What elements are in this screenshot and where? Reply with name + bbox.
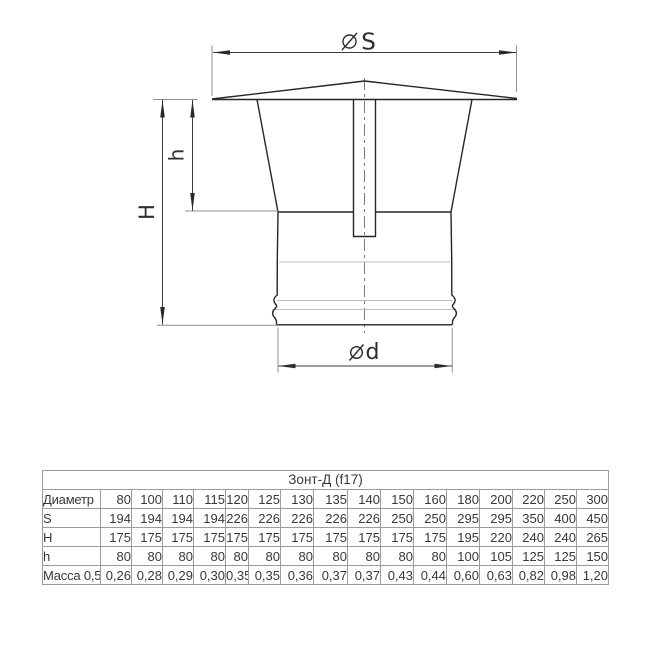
label-phi-d: d — [350, 340, 380, 365]
bottom-diameter-label: d — [366, 340, 380, 365]
value-cell: 80 — [194, 547, 226, 566]
cone-height-label: h — [165, 149, 189, 162]
cone-right — [451, 100, 472, 213]
label-phi-s: S — [342, 30, 376, 56]
value-cell: 300 — [577, 490, 609, 509]
value-cell: 295 — [480, 509, 513, 528]
value-cell: 105 — [480, 547, 513, 566]
value-cell: 100 — [132, 490, 163, 509]
value-cell: 130 — [281, 490, 314, 509]
value-cell: 226 — [226, 509, 249, 528]
value-cell: 220 — [480, 528, 513, 547]
value-cell: 80 — [348, 547, 381, 566]
value-cell: 175 — [226, 528, 249, 547]
row-label-cell: S — [43, 509, 101, 528]
table-row: h8080808080808080808080100105125125150 — [43, 547, 609, 566]
dimensions-table: Зонт-Д (f17) Диаметр80100110115120125130… — [42, 470, 609, 585]
value-cell: 0,37 — [314, 566, 348, 585]
value-cell: 115 — [194, 490, 226, 509]
row-label-cell: h — [43, 547, 101, 566]
value-cell: 194 — [163, 509, 194, 528]
diameter-icon — [342, 33, 357, 50]
value-cell: 0,63 — [480, 566, 513, 585]
value-cell: 110 — [163, 490, 194, 509]
value-cell: 175 — [414, 528, 447, 547]
value-cell: 194 — [194, 509, 226, 528]
value-cell: 265 — [577, 528, 609, 547]
value-cell: 226 — [249, 509, 281, 528]
cone-left — [257, 100, 278, 213]
value-cell: 0,30 — [194, 566, 226, 585]
value-cell: 295 — [447, 509, 480, 528]
value-cell: 80 — [414, 547, 447, 566]
value-cell: 350 — [513, 509, 545, 528]
value-cell: 250 — [545, 490, 577, 509]
table-title: Зонт-Д (f17) — [43, 471, 609, 490]
value-cell: 226 — [314, 509, 348, 528]
value-cell: 80 — [314, 547, 348, 566]
value-cell: 194 — [132, 509, 163, 528]
value-cell: 0,60 — [447, 566, 480, 585]
value-cell: 100 — [447, 547, 480, 566]
value-cell: 175 — [194, 528, 226, 547]
value-cell: 226 — [348, 509, 381, 528]
row-label-cell: Диаметр — [43, 490, 101, 509]
table-title-row: Зонт-Д (f17) — [43, 471, 609, 490]
value-cell: 195 — [447, 528, 480, 547]
cylinder-right-side — [451, 212, 456, 325]
value-cell: 0,43 — [381, 566, 414, 585]
row-label-cell: Масса 0,5 — [43, 566, 101, 585]
value-cell: 194 — [101, 509, 132, 528]
value-cell: 125 — [513, 547, 545, 566]
value-cell: 0,82 — [513, 566, 545, 585]
value-cell: 226 — [281, 509, 314, 528]
value-cell: 120 — [226, 490, 249, 509]
dim-arrow-down — [160, 307, 165, 325]
value-cell: 140 — [348, 490, 381, 509]
diameter-icon — [350, 345, 364, 361]
value-cell: 80 — [249, 547, 281, 566]
dim-arrow-right — [435, 364, 453, 369]
value-cell: 80 — [132, 547, 163, 566]
value-cell: 0,29 — [163, 566, 194, 585]
dim-arrow-up — [160, 100, 165, 118]
table-row: S194194194194226226226226226250250295295… — [43, 509, 609, 528]
value-cell: 180 — [447, 490, 480, 509]
value-cell: 150 — [381, 490, 414, 509]
value-cell: 80 — [381, 547, 414, 566]
value-cell: 80 — [226, 547, 249, 566]
value-cell: 0,35 — [249, 566, 281, 585]
value-cell: 160 — [414, 490, 447, 509]
dim-arrow-down — [190, 193, 195, 211]
center-stem — [354, 100, 376, 237]
dimension-bottom-diameter: d — [278, 328, 452, 373]
value-cell: 220 — [513, 490, 545, 509]
value-cell: 80 — [281, 547, 314, 566]
cylinder-left-side — [273, 212, 278, 325]
table-row: H175175175175175175175175175175175195220… — [43, 528, 609, 547]
product-drawing-page: S d H — [0, 0, 650, 650]
dim-arrow-right — [499, 50, 517, 55]
value-cell: 450 — [577, 509, 609, 528]
dim-arrow-left — [213, 50, 231, 55]
value-cell: 175 — [132, 528, 163, 547]
value-cell: 150 — [577, 547, 609, 566]
value-cell: 80 — [101, 490, 132, 509]
value-cell: 80 — [101, 547, 132, 566]
value-cell: 250 — [381, 509, 414, 528]
value-cell: 0,28 — [132, 566, 163, 585]
total-height-label: H — [135, 204, 159, 220]
dimension-total-height: H — [135, 100, 277, 326]
value-cell: 0,35 — [226, 566, 249, 585]
value-cell: 175 — [314, 528, 348, 547]
value-cell: 0,37 — [348, 566, 381, 585]
value-cell: 175 — [101, 528, 132, 547]
value-cell: 125 — [249, 490, 281, 509]
dimension-cone-height: h — [165, 100, 279, 211]
table-row: Диаметр801001101151201251301351401501601… — [43, 490, 609, 509]
value-cell: 175 — [249, 528, 281, 547]
value-cell: 0,44 — [414, 566, 447, 585]
value-cell: 240 — [545, 528, 577, 547]
value-cell: 0,26 — [101, 566, 132, 585]
value-cell: 135 — [314, 490, 348, 509]
chimney-cap-drawing: S d H — [0, 0, 650, 430]
value-cell: 175 — [163, 528, 194, 547]
top-diameter-label: S — [361, 30, 376, 56]
row-label-cell: H — [43, 528, 101, 547]
dim-arrow-left — [278, 364, 296, 369]
value-cell: 1,20 — [577, 566, 609, 585]
value-cell: 240 — [513, 528, 545, 547]
value-cell: 400 — [545, 509, 577, 528]
dim-arrow-up — [190, 100, 195, 118]
value-cell: 0,36 — [281, 566, 314, 585]
value-cell: 80 — [163, 547, 194, 566]
value-cell: 250 — [414, 509, 447, 528]
value-cell: 125 — [545, 547, 577, 566]
value-cell: 175 — [381, 528, 414, 547]
table-row: Масса 0,50,260,280,290,300,350,350,360,3… — [43, 566, 609, 585]
value-cell: 200 — [480, 490, 513, 509]
value-cell: 0,98 — [545, 566, 577, 585]
value-cell: 175 — [281, 528, 314, 547]
value-cell: 175 — [348, 528, 381, 547]
